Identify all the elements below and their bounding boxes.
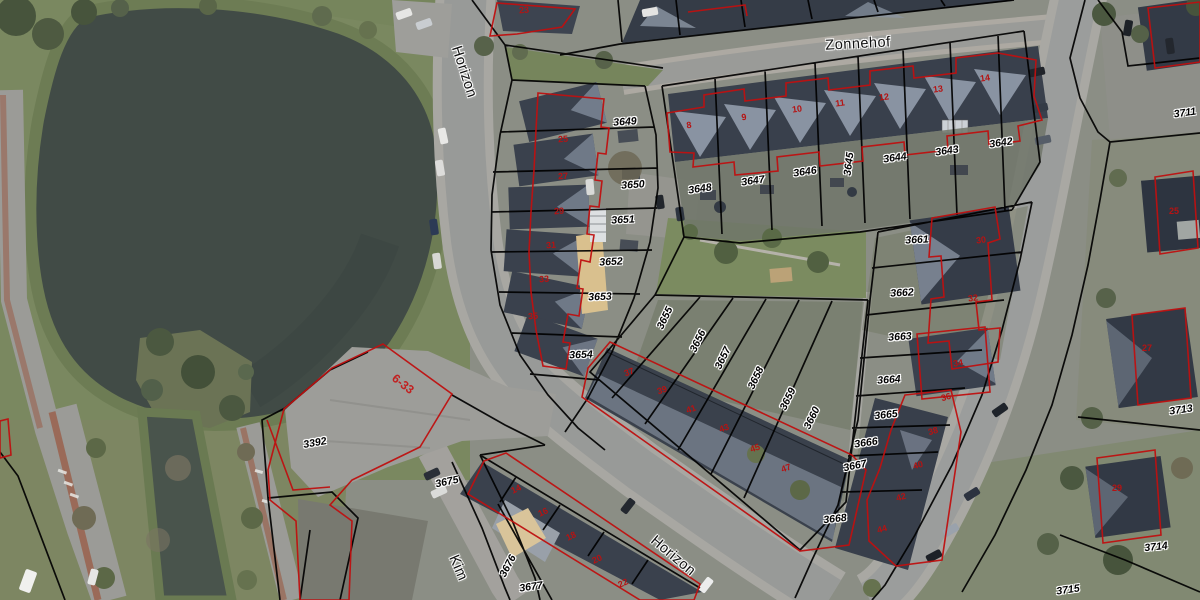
building-top-left-cut [497, 0, 580, 34]
building-house-27 [1106, 308, 1198, 408]
map-canvas[interactable]: ZonnehofHorizonHorizonKim364936503651365… [0, 0, 1200, 600]
building-house-25 [1141, 176, 1200, 253]
building-3661-3662 [910, 206, 1021, 304]
aerial-basemap [0, 0, 1200, 600]
